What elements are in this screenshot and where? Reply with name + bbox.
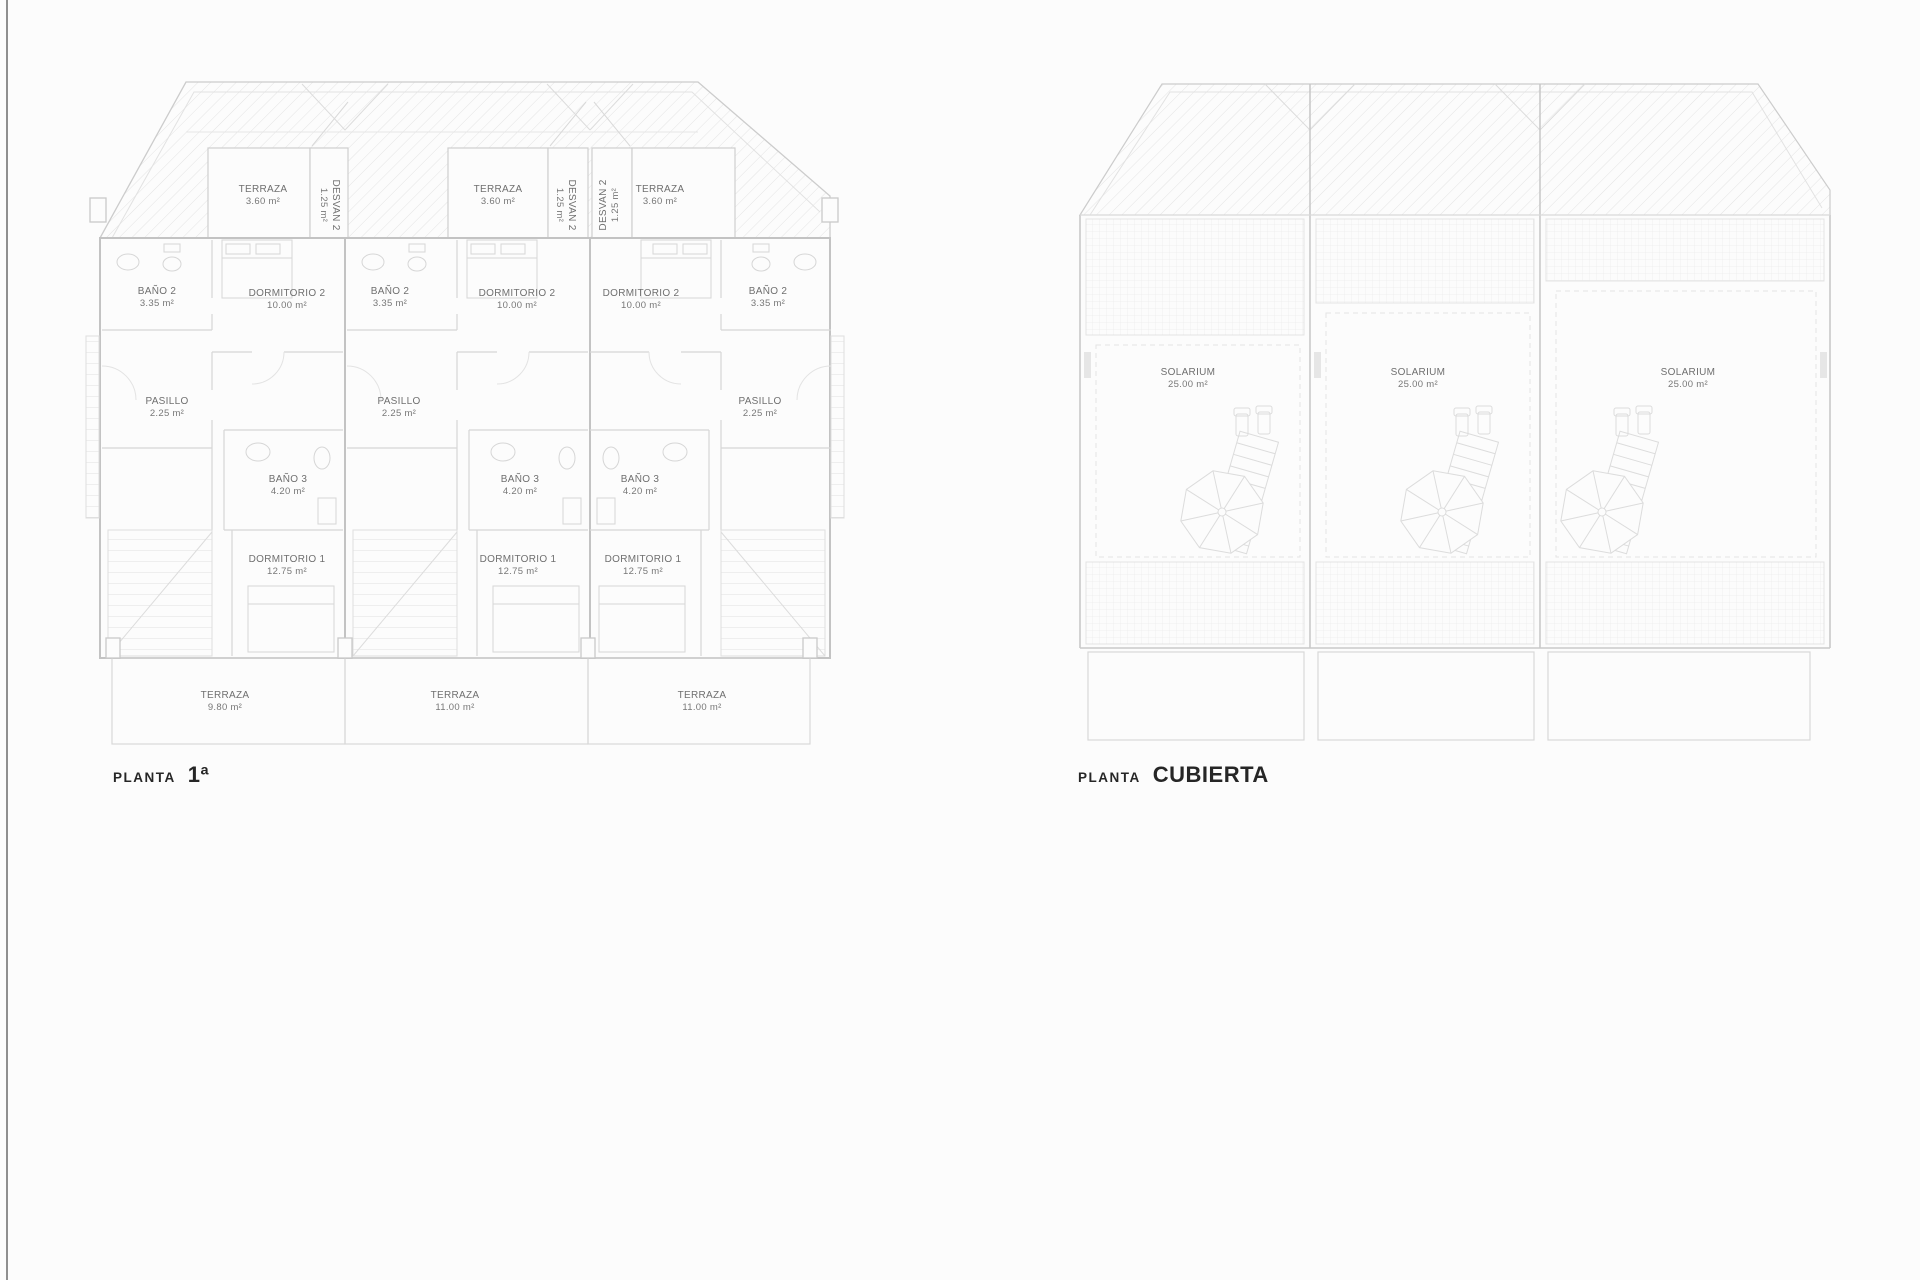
room-name: PASILLO — [738, 396, 781, 408]
room-name: PASILLO — [145, 396, 188, 408]
room-label-terraza-atico-u3: TERRAZA 3.60 m² — [636, 184, 685, 208]
room-label-bano2-u2: BAÑO 2 3.35 m² — [371, 286, 409, 310]
room-name: DORMITORIO 2 — [479, 288, 556, 300]
plan1-title: PLANTA1ª — [113, 762, 209, 788]
plan2-title-prefix: PLANTA — [1078, 770, 1141, 785]
room-area: 11.00 m² — [678, 702, 727, 714]
room-name: TERRAZA — [636, 184, 685, 196]
room-area: 3.35 m² — [138, 298, 176, 310]
room-label-desvan2-u3: DESVAN 2 1.25 m² — [598, 179, 622, 230]
ladder-umbrella-icon — [1177, 406, 1659, 557]
room-area: 12.75 m² — [605, 566, 682, 578]
plan1-title-prefix: PLANTA — [113, 770, 176, 785]
room-label-dormitorio2-u2: DORMITORIO 2 10.00 m² — [479, 288, 556, 312]
room-name: DESVAN 2 — [565, 179, 577, 230]
room-name: DESVAN 2 — [329, 179, 341, 230]
plan2-title-name: CUBIERTA — [1153, 762, 1269, 787]
room-area: 3.60 m² — [636, 196, 685, 208]
room-label-pasillo-u2: PASILLO 2.25 m² — [377, 396, 420, 420]
room-name: TERRAZA — [678, 690, 727, 702]
room-area: 25.00 m² — [1391, 379, 1446, 391]
room-label-terraza-u2: TERRAZA 11.00 m² — [431, 690, 480, 714]
plan2-linework — [1080, 84, 1830, 740]
room-label-bano3-u3: BAÑO 3 4.20 m² — [621, 474, 659, 498]
room-name: BAÑO 2 — [138, 286, 176, 298]
room-name: BAÑO 3 — [269, 474, 307, 486]
room-area: 25.00 m² — [1161, 379, 1216, 391]
room-area: 10.00 m² — [603, 300, 680, 312]
roof-pergola-areas — [1086, 219, 1824, 335]
room-label-dormitorio2-u1: DORMITORIO 2 10.00 m² — [249, 288, 326, 312]
room-area: 10.00 m² — [479, 300, 556, 312]
plan1-linework — [86, 82, 844, 744]
room-label-solarium-u1: SOLARIUM 25.00 m² — [1161, 367, 1216, 391]
room-name: BAÑO 2 — [749, 286, 787, 298]
room-name: BAÑO 2 — [371, 286, 409, 298]
room-label-desvan2-u1: DESVAN 2 1.25 m² — [317, 179, 341, 230]
room-area: 2.25 m² — [145, 408, 188, 420]
plan1-title-name: 1ª — [188, 762, 209, 787]
room-name: DORMITORIO 1 — [480, 554, 557, 566]
room-name: TERRAZA — [431, 690, 480, 702]
room-area: 12.75 m² — [480, 566, 557, 578]
room-area: 12.75 m² — [249, 566, 326, 578]
room-area: 2.25 m² — [738, 408, 781, 420]
roof-ground-terraces — [1088, 652, 1810, 740]
room-area: 1.25 m² — [317, 179, 329, 230]
room-area: 10.00 m² — [249, 300, 326, 312]
room-area: 4.20 m² — [621, 486, 659, 498]
room-name: DORMITORIO 2 — [603, 288, 680, 300]
room-name: DORMITORIO 1 — [605, 554, 682, 566]
room-name: SOLARIUM — [1161, 367, 1216, 379]
room-name: SOLARIUM — [1661, 367, 1716, 379]
room-label-terraza-u1: TERRAZA 9.80 m² — [201, 690, 250, 714]
room-label-bano3-u2: BAÑO 3 4.20 m² — [501, 474, 539, 498]
room-label-dormitorio1-u3: DORMITORIO 1 12.75 m² — [605, 554, 682, 578]
room-label-pasillo-u3: PASILLO 2.25 m² — [738, 396, 781, 420]
room-label-solarium-u2: SOLARIUM 25.00 m² — [1391, 367, 1446, 391]
room-area: 1.25 m² — [610, 179, 622, 230]
room-area: 2.25 m² — [377, 408, 420, 420]
room-label-terraza-u3: TERRAZA 11.00 m² — [678, 690, 727, 714]
room-label-dormitorio1-u2: DORMITORIO 1 12.75 m² — [480, 554, 557, 578]
roof-lower-bands — [1086, 562, 1824, 644]
room-label-dormitorio2-u3: DORMITORIO 2 10.00 m² — [603, 288, 680, 312]
room-name: BAÑO 3 — [621, 474, 659, 486]
room-label-desvan2-u2: DESVAN 2 1.25 m² — [553, 179, 577, 230]
floor-plan-sheet: TERRAZA 3.60 m² DESVAN 2 1.25 m² TERRAZA… — [0, 0, 1920, 1280]
room-name: DESVAN 2 — [598, 179, 610, 230]
room-area: 4.20 m² — [501, 486, 539, 498]
plan2-title: PLANTACUBIERTA — [1078, 762, 1269, 788]
room-name: TERRAZA — [201, 690, 250, 702]
room-name: PASILLO — [377, 396, 420, 408]
room-label-bano2-u1: BAÑO 2 3.35 m² — [138, 286, 176, 310]
room-area: 25.00 m² — [1661, 379, 1716, 391]
room-area: 9.80 m² — [201, 702, 250, 714]
room-area: 3.60 m² — [474, 196, 523, 208]
room-name: BAÑO 3 — [501, 474, 539, 486]
plans-linework-svg — [0, 0, 1920, 1280]
room-area: 4.20 m² — [269, 486, 307, 498]
room-name: TERRAZA — [474, 184, 523, 196]
room-label-bano3-u1: BAÑO 3 4.20 m² — [269, 474, 307, 498]
room-area: 3.35 m² — [749, 298, 787, 310]
room-label-solarium-u3: SOLARIUM 25.00 m² — [1661, 367, 1716, 391]
room-name: DORMITORIO 1 — [249, 554, 326, 566]
room-name: SOLARIUM — [1391, 367, 1446, 379]
room-label-dormitorio1-u1: DORMITORIO 1 12.75 m² — [249, 554, 326, 578]
room-label-pasillo-u1: PASILLO 2.25 m² — [145, 396, 188, 420]
room-name: DORMITORIO 2 — [249, 288, 326, 300]
room-area: 11.00 m² — [431, 702, 480, 714]
room-label-bano2-u3: BAÑO 2 3.35 m² — [749, 286, 787, 310]
room-area: 3.60 m² — [239, 196, 288, 208]
room-label-terraza-atico-u2: TERRAZA 3.60 m² — [474, 184, 523, 208]
room-area: 1.25 m² — [553, 179, 565, 230]
room-name: TERRAZA — [239, 184, 288, 196]
room-label-terraza-atico-u1: TERRAZA 3.60 m² — [239, 184, 288, 208]
room-area: 3.35 m² — [371, 298, 409, 310]
